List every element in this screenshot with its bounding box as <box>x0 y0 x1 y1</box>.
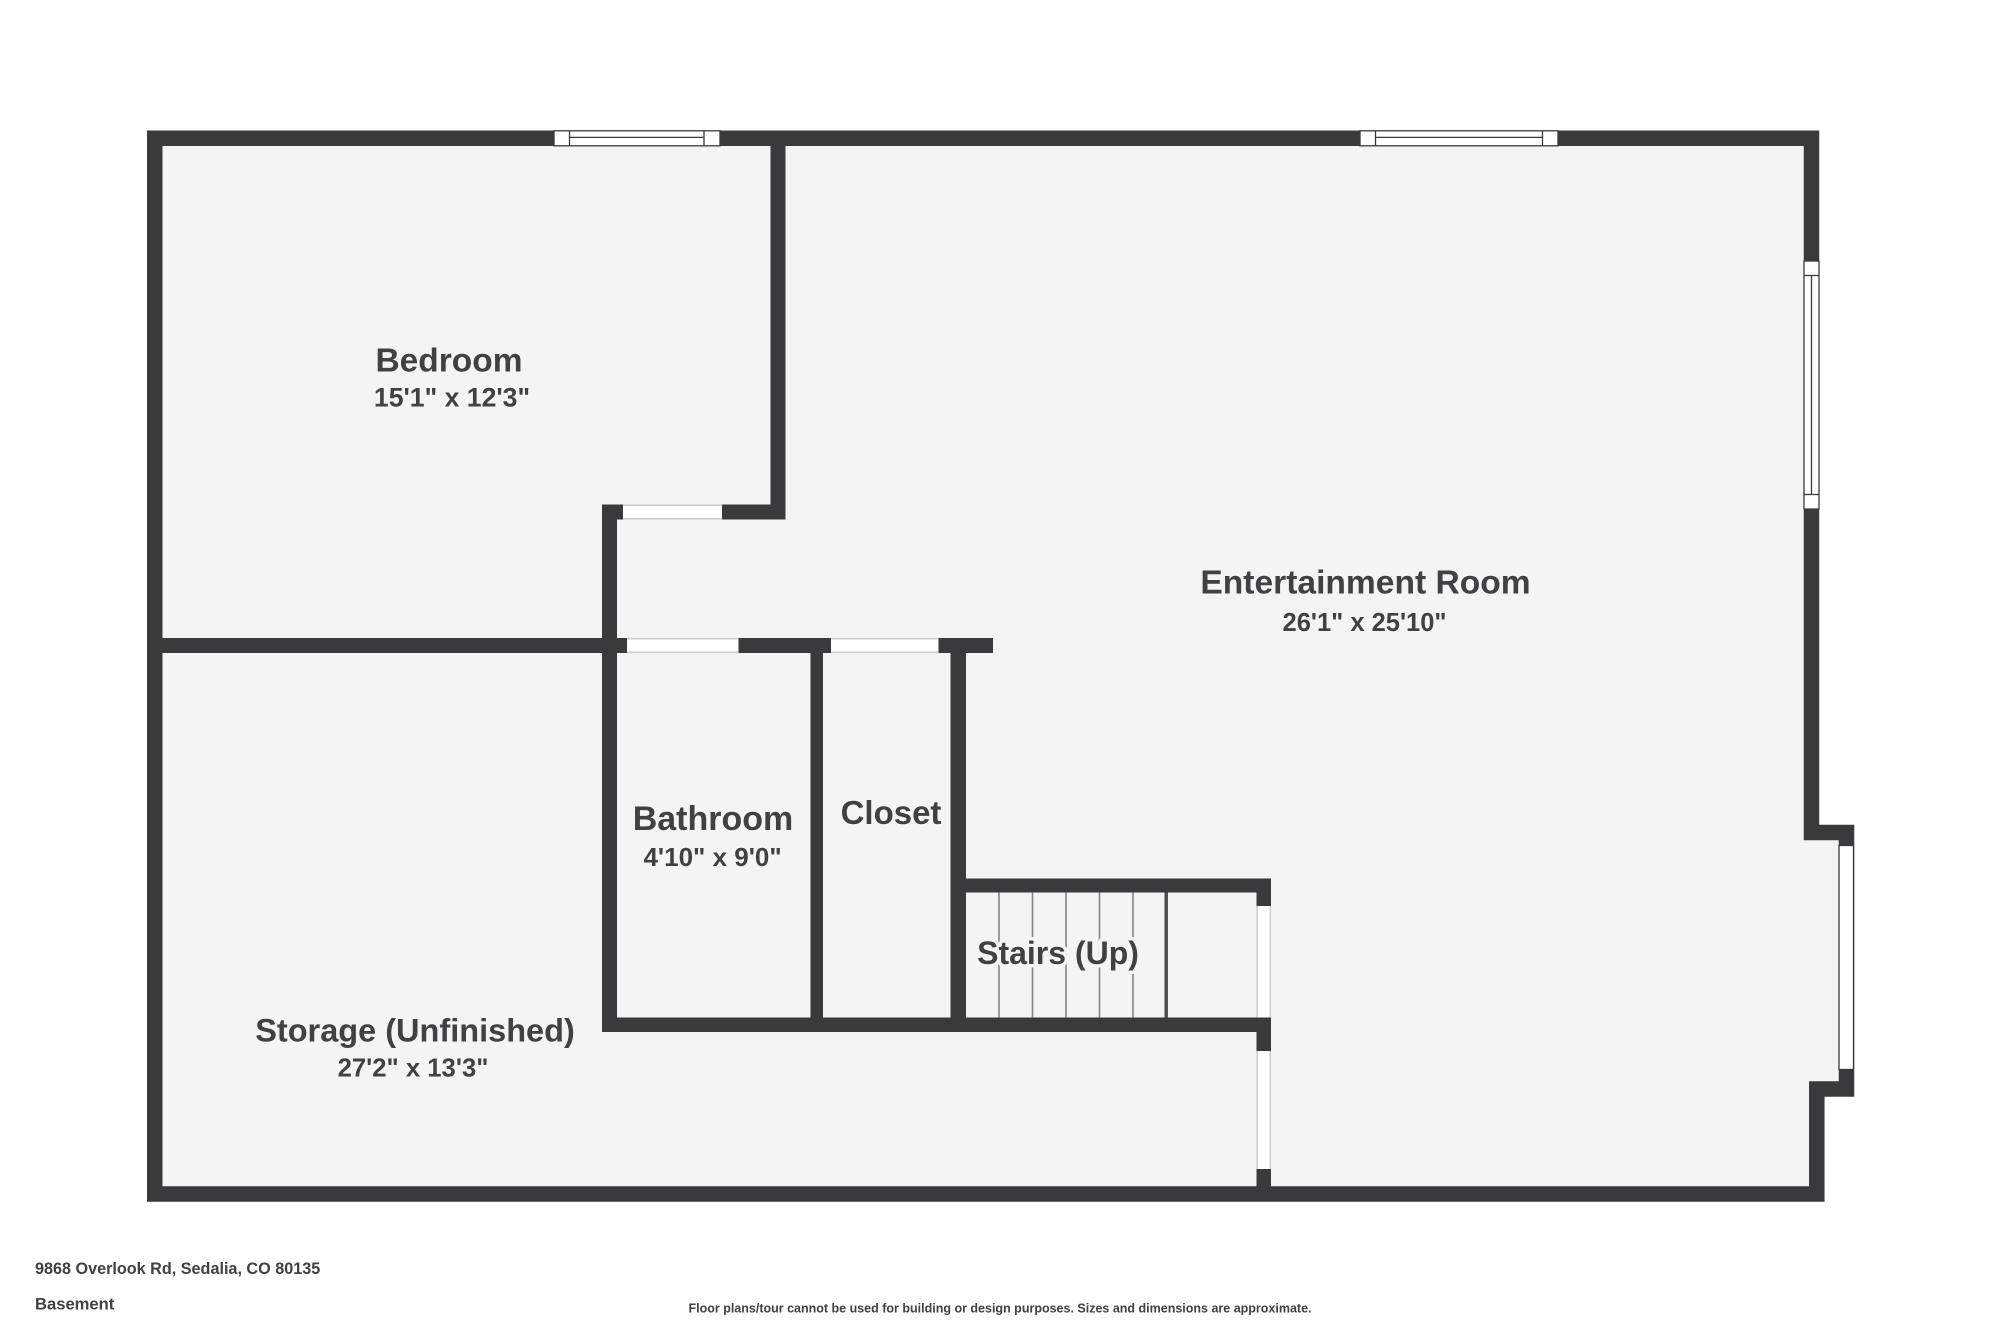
svg-text:27'2" x 13'3": 27'2" x 13'3" <box>338 1055 489 1083</box>
svg-text:Storage (Unfinished): Storage (Unfinished) <box>255 1012 575 1048</box>
svg-text:Entertainment Room: Entertainment Room <box>1200 564 1530 601</box>
svg-text:Floor plans/tour cannot be use: Floor plans/tour cannot be used for buil… <box>688 1301 1311 1315</box>
svg-text:4'10" x 9'0": 4'10" x 9'0" <box>643 842 781 872</box>
svg-text:Basement: Basement <box>35 1294 115 1313</box>
svg-text:15'1" x 12'3": 15'1" x 12'3" <box>374 382 530 412</box>
svg-text:Stairs (Up): Stairs (Up) <box>977 935 1139 971</box>
svg-text:26'1" x 25'10": 26'1" x 25'10" <box>1283 609 1447 637</box>
svg-text:Bathroom: Bathroom <box>633 800 794 838</box>
svg-text:9868 Overlook Rd, Sedalia, CO: 9868 Overlook Rd, Sedalia, CO 80135 <box>35 1260 320 1278</box>
svg-text:Bedroom: Bedroom <box>375 343 522 380</box>
svg-text:Closet: Closet <box>841 794 942 831</box>
